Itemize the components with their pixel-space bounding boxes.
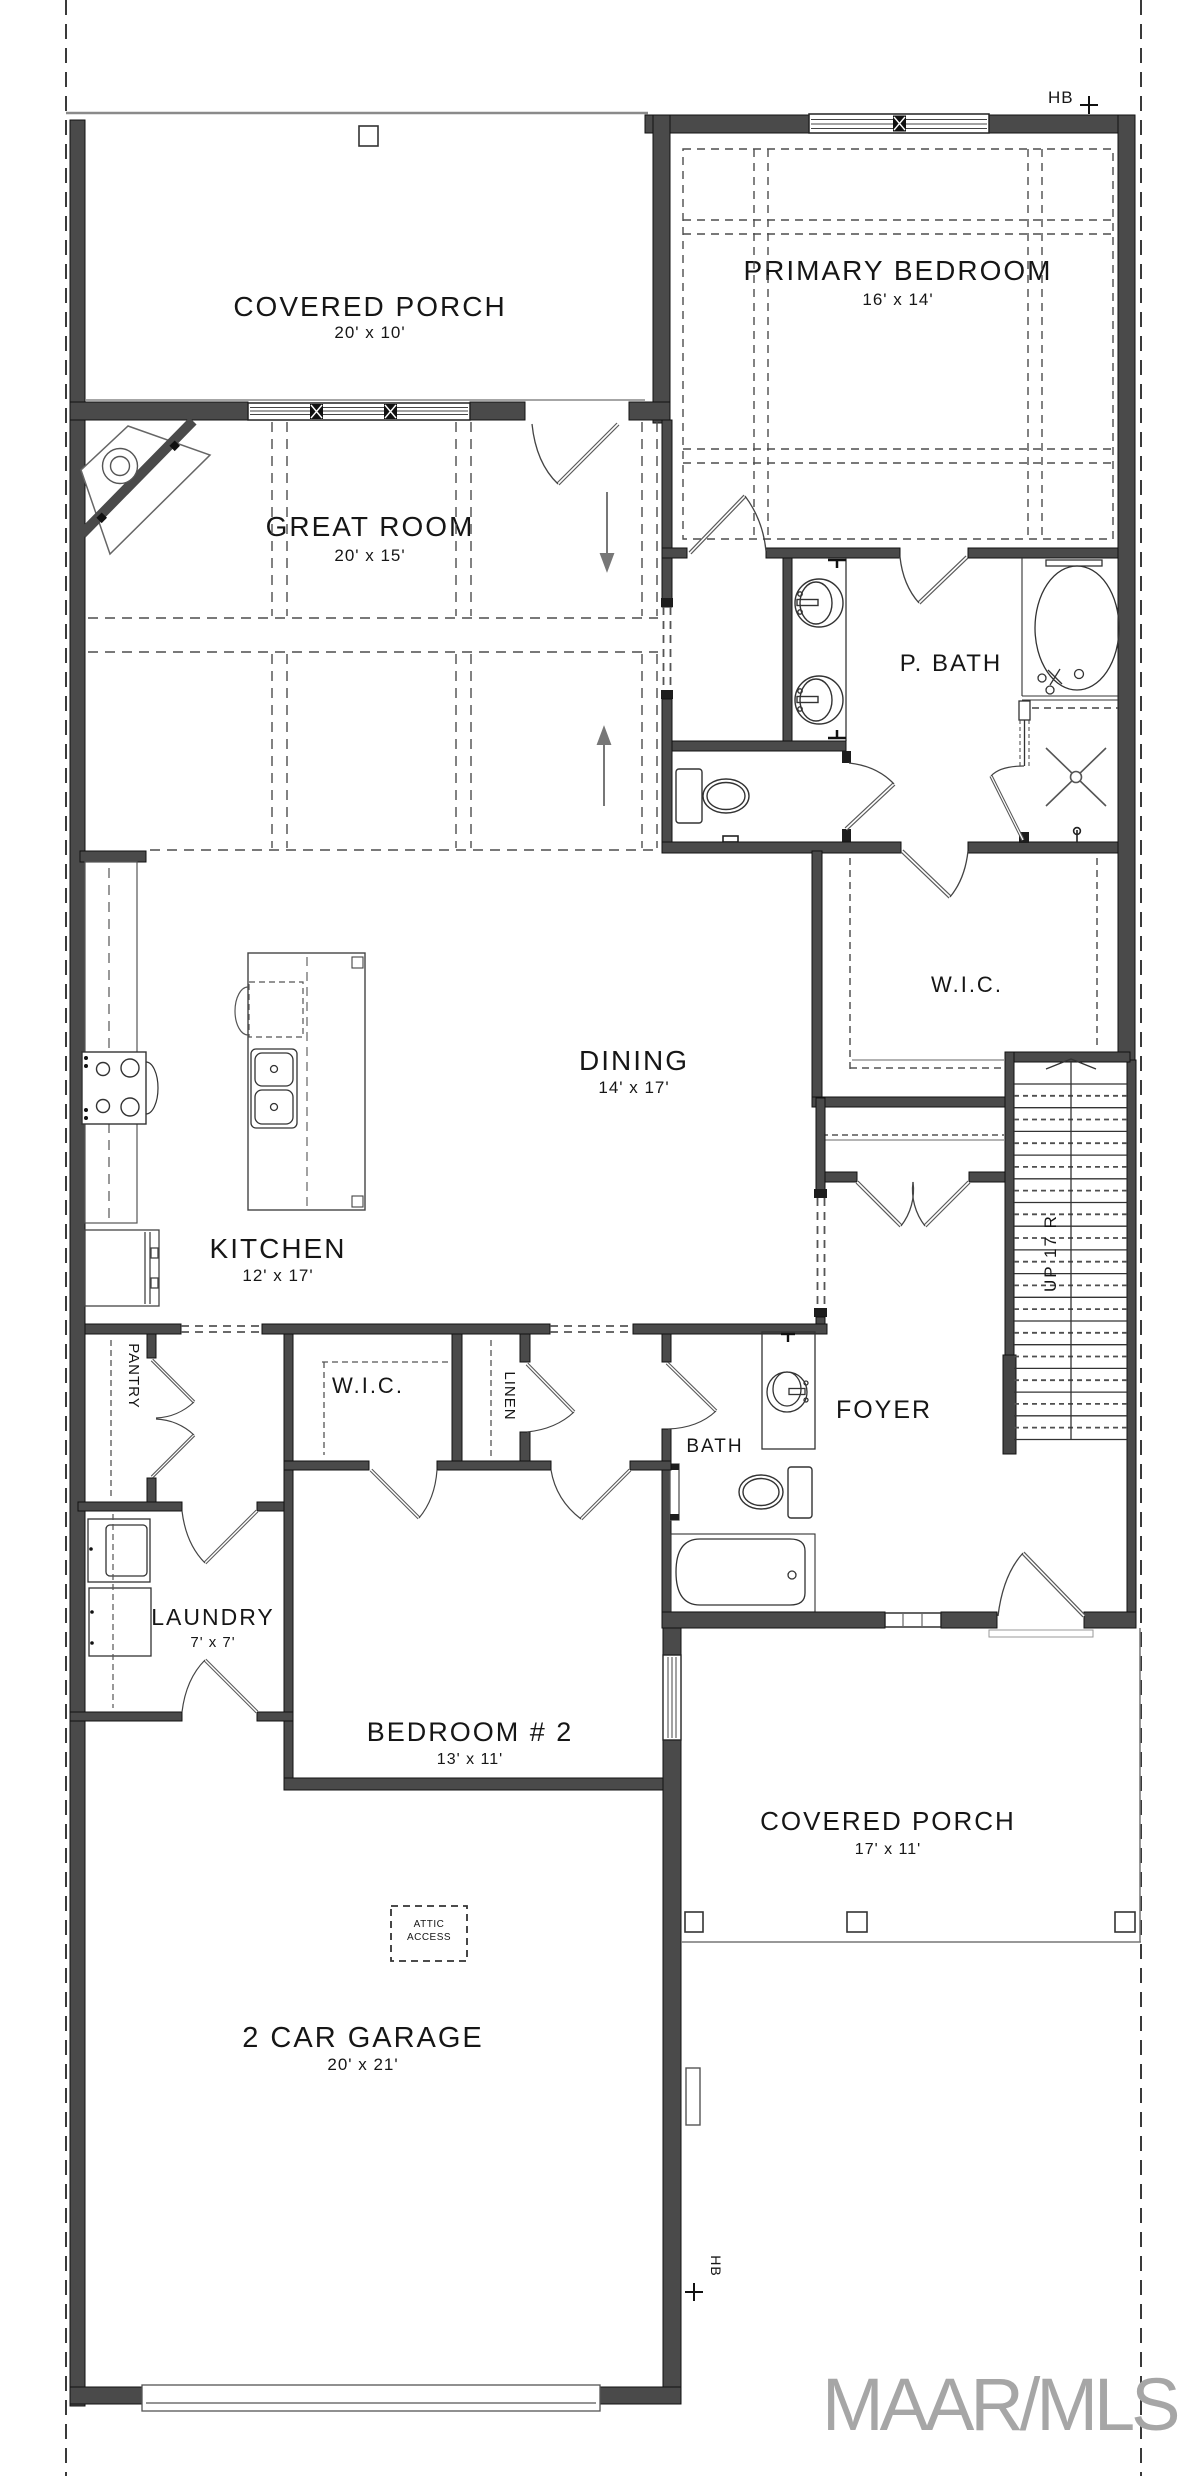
svg-text:LINEN: LINEN: [501, 1371, 518, 1420]
svg-text:20' x 10': 20' x 10': [334, 323, 405, 342]
svg-text:ACCESS: ACCESS: [407, 1932, 451, 1943]
svg-text:7' x 7': 7' x 7': [190, 1634, 235, 1651]
svg-text:BATH: BATH: [686, 1436, 743, 1457]
svg-text:W.I.C.: W.I.C.: [332, 1373, 404, 1398]
svg-text:14' x 17': 14' x 17': [598, 1078, 669, 1097]
svg-text:PANTRY: PANTRY: [125, 1343, 142, 1408]
svg-text:HB: HB: [1048, 88, 1074, 107]
svg-text:MAAR/MLS: MAAR/MLS: [822, 2363, 1177, 2446]
svg-text:12' x 17': 12' x 17': [242, 1266, 313, 1285]
svg-text:PRIMARY BEDROOM: PRIMARY BEDROOM: [743, 255, 1052, 286]
svg-text:P. BATH: P. BATH: [900, 650, 1002, 677]
svg-text:HB: HB: [708, 2255, 724, 2276]
svg-text:BEDROOM # 2: BEDROOM # 2: [367, 1717, 574, 1747]
svg-text:W.I.C.: W.I.C.: [931, 972, 1003, 997]
svg-text:COVERED PORCH: COVERED PORCH: [760, 1806, 1016, 1836]
svg-text:16' x 14': 16' x 14': [862, 290, 933, 309]
svg-text:LAUNDRY: LAUNDRY: [151, 1604, 275, 1630]
svg-text:ATTIC: ATTIC: [414, 1919, 445, 1930]
svg-text:FOYER: FOYER: [836, 1396, 932, 1424]
svg-text:KITCHEN: KITCHEN: [210, 1233, 347, 1264]
svg-text:2 CAR GARAGE: 2 CAR GARAGE: [242, 2022, 484, 2054]
svg-text:17' x 11': 17' x 11': [855, 1841, 921, 1858]
svg-text:DINING: DINING: [579, 1045, 689, 1076]
svg-text:GREAT ROOM: GREAT ROOM: [266, 511, 475, 542]
svg-text:20' x 21': 20' x 21': [327, 2055, 398, 2074]
svg-text:20' x 15': 20' x 15': [334, 546, 405, 565]
svg-text:UP 17 R: UP 17 R: [1041, 1214, 1060, 1292]
svg-text:COVERED PORCH: COVERED PORCH: [233, 291, 506, 322]
svg-text:13' x 11': 13' x 11': [437, 1751, 503, 1768]
